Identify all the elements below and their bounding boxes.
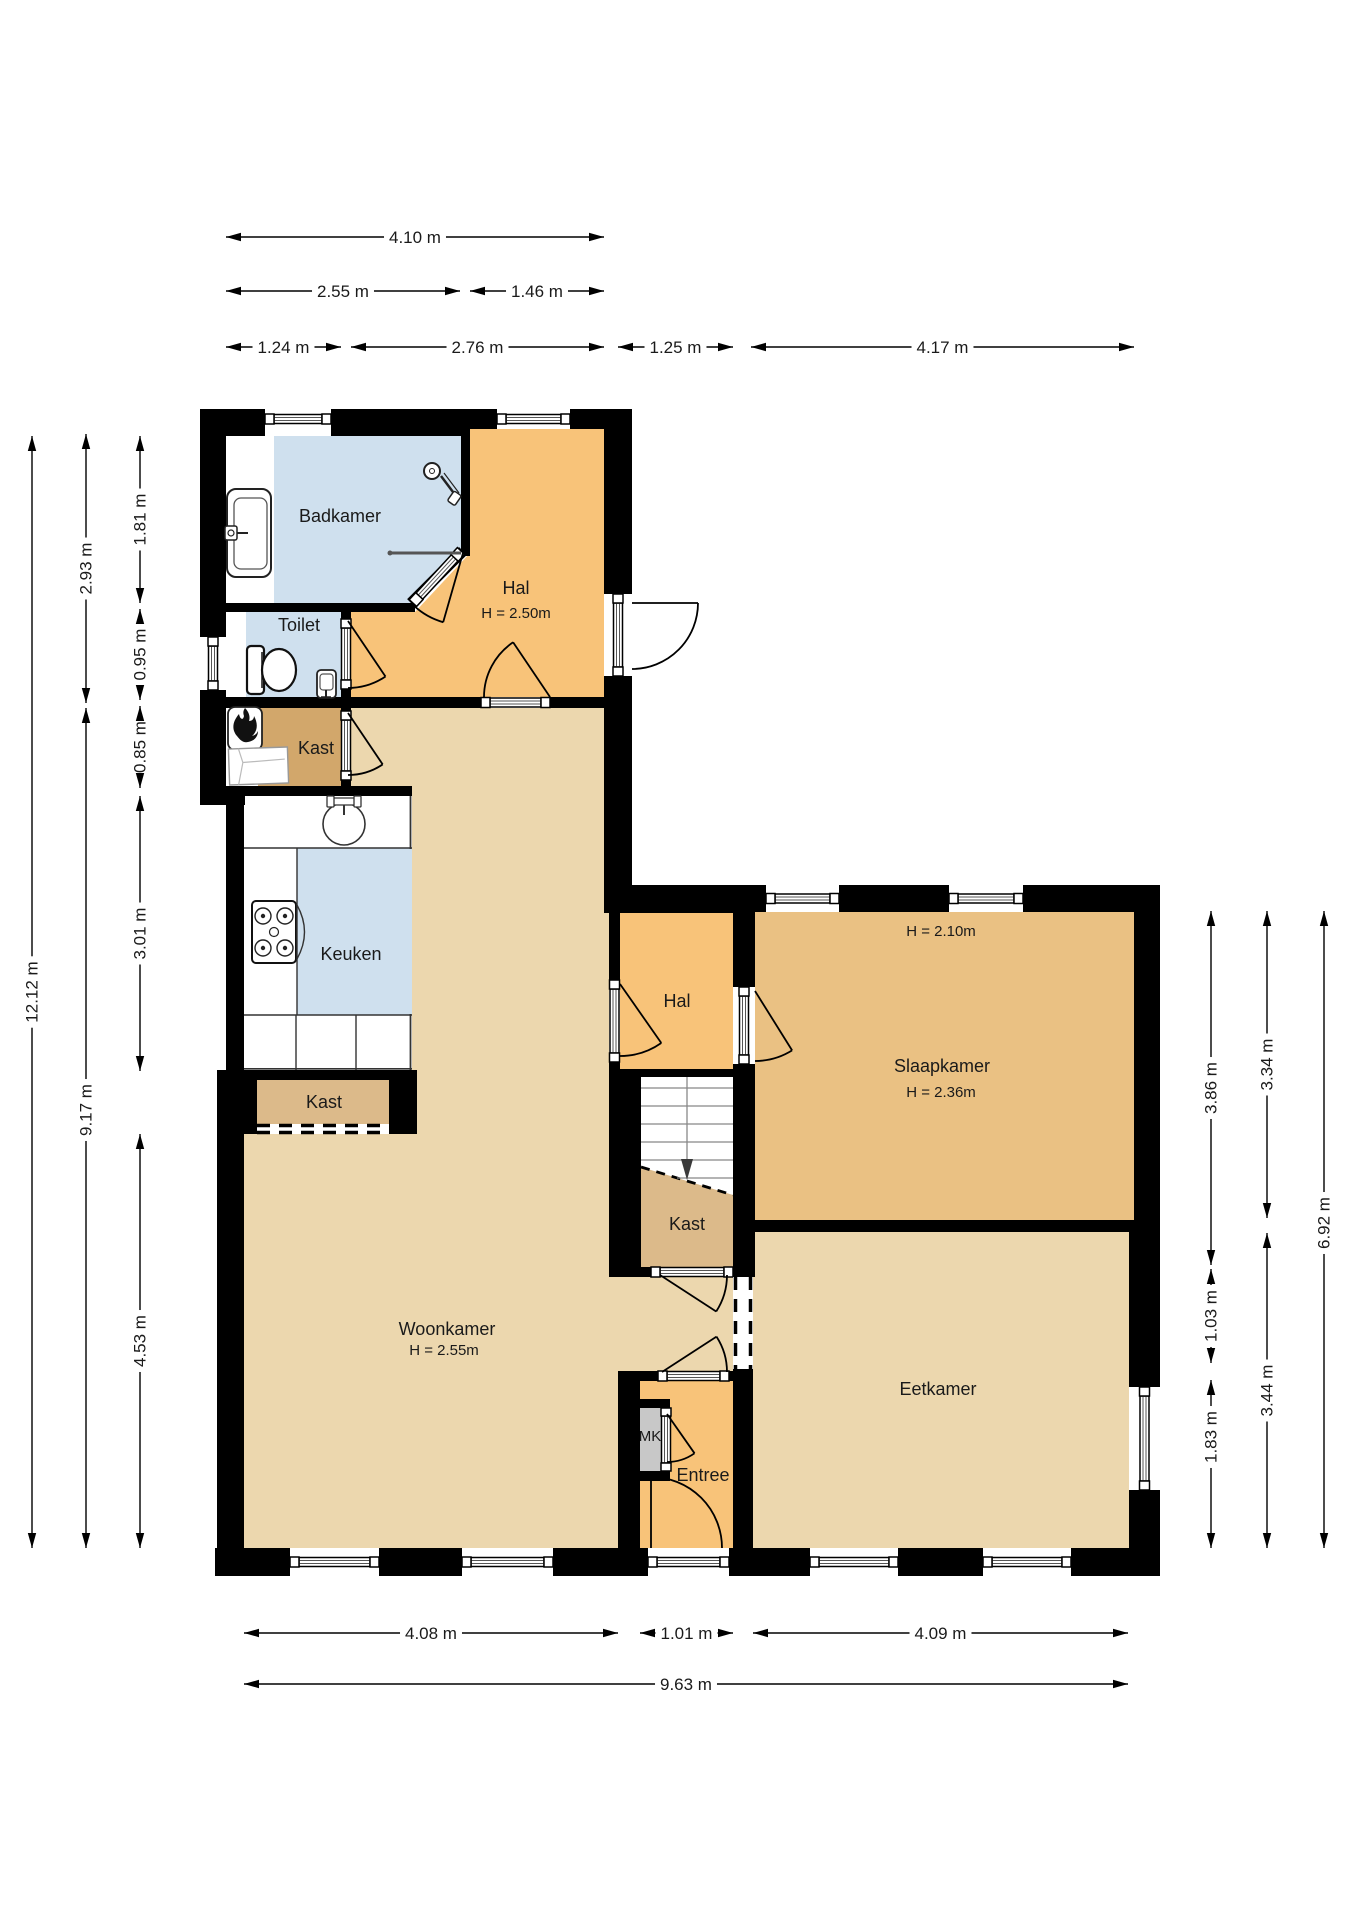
- svg-text:9.63 m: 9.63 m: [660, 1675, 712, 1694]
- svg-text:0.95 m: 0.95 m: [131, 629, 150, 681]
- svg-text:1.83 m: 1.83 m: [1202, 1411, 1221, 1463]
- svg-text:Eetkamer: Eetkamer: [899, 1379, 976, 1399]
- svg-text:4.09 m: 4.09 m: [915, 1624, 967, 1643]
- svg-text:Keuken: Keuken: [320, 944, 381, 964]
- svg-text:4.53 m: 4.53 m: [131, 1315, 150, 1367]
- svg-text:1.03 m: 1.03 m: [1202, 1290, 1221, 1342]
- svg-text:0.85 m: 0.85 m: [131, 721, 150, 773]
- svg-text:2.93 m: 2.93 m: [77, 543, 96, 595]
- svg-text:Hal: Hal: [502, 578, 529, 598]
- svg-text:Kast: Kast: [298, 738, 334, 758]
- svg-text:2.55 m: 2.55 m: [317, 282, 369, 301]
- svg-text:1.81 m: 1.81 m: [131, 494, 150, 546]
- svg-text:1.01 m: 1.01 m: [661, 1624, 713, 1643]
- svg-text:3.34 m: 3.34 m: [1258, 1039, 1277, 1091]
- svg-text:H = 2.10m: H = 2.10m: [906, 923, 976, 940]
- svg-text:Toilet: Toilet: [278, 615, 320, 635]
- svg-text:Entree: Entree: [676, 1465, 729, 1485]
- svg-text:4.08 m: 4.08 m: [405, 1624, 457, 1643]
- svg-text:Woonkamer: Woonkamer: [399, 1319, 496, 1339]
- svg-text:9.17 m: 9.17 m: [77, 1084, 96, 1136]
- svg-text:3.01 m: 3.01 m: [131, 908, 150, 960]
- svg-text:1.24 m: 1.24 m: [258, 338, 310, 357]
- svg-text:3.44 m: 3.44 m: [1258, 1365, 1277, 1417]
- svg-text:1.46 m: 1.46 m: [511, 282, 563, 301]
- svg-text:Kast: Kast: [306, 1092, 342, 1112]
- svg-text:H = 2.50m: H = 2.50m: [481, 605, 551, 622]
- svg-text:H = 2.36m: H = 2.36m: [906, 1084, 976, 1101]
- svg-text:MK: MK: [639, 1428, 662, 1445]
- svg-text:12.12 m: 12.12 m: [23, 961, 42, 1022]
- svg-text:4.10 m: 4.10 m: [389, 228, 441, 247]
- svg-text:Hal: Hal: [663, 991, 690, 1011]
- svg-text:Kast: Kast: [669, 1214, 705, 1234]
- svg-text:Badkamer: Badkamer: [299, 506, 381, 526]
- svg-text:3.86 m: 3.86 m: [1202, 1062, 1221, 1114]
- svg-text:4.17 m: 4.17 m: [917, 338, 969, 357]
- svg-text:6.92 m: 6.92 m: [1315, 1197, 1334, 1249]
- svg-text:H = 2.55m: H = 2.55m: [409, 1342, 479, 1359]
- svg-text:Slaapkamer: Slaapkamer: [894, 1056, 990, 1076]
- svg-text:2.76 m: 2.76 m: [452, 338, 504, 357]
- svg-text:1.25 m: 1.25 m: [650, 338, 702, 357]
